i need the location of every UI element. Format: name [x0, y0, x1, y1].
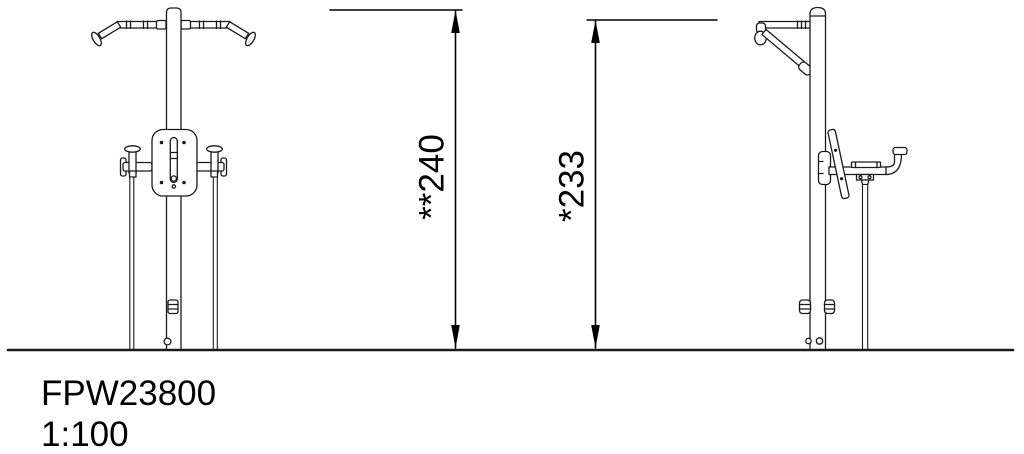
dimension-label-240: **240 — [415, 134, 450, 220]
dip-support-post-left — [130, 177, 134, 350]
arrowhead-down-icon — [591, 325, 600, 348]
dip-support-post-side — [863, 185, 868, 351]
dip-support-post-right — [213, 177, 217, 350]
arrowhead-up-icon — [591, 20, 600, 43]
dip-handle-right — [195, 146, 227, 350]
pullup-arm-side — [755, 21, 814, 76]
side-view-drawing — [755, 8, 907, 351]
pullup-handle-right — [226, 22, 248, 39]
dip-handle-left — [121, 146, 153, 350]
technical-drawing-sheet: **240 *233 FPW23800 1:100 — [0, 0, 1024, 454]
product-code: FPW23800 — [41, 376, 216, 411]
post-clamp-front — [168, 300, 178, 314]
pullup-handle-left — [98, 22, 120, 39]
anchor-detail-front — [164, 338, 171, 345]
arrowhead-down-icon — [451, 325, 460, 348]
anchor-detail-side — [806, 338, 811, 343]
back-pad-front — [152, 130, 197, 197]
dimension-label-233: *233 — [555, 150, 590, 222]
anchor-detail-side — [816, 338, 822, 344]
front-view-drawing — [90, 8, 258, 350]
arrowhead-up-icon — [451, 10, 460, 33]
dimension-line-233 — [587, 20, 717, 348]
drawing-scale: 1:100 — [41, 417, 129, 452]
